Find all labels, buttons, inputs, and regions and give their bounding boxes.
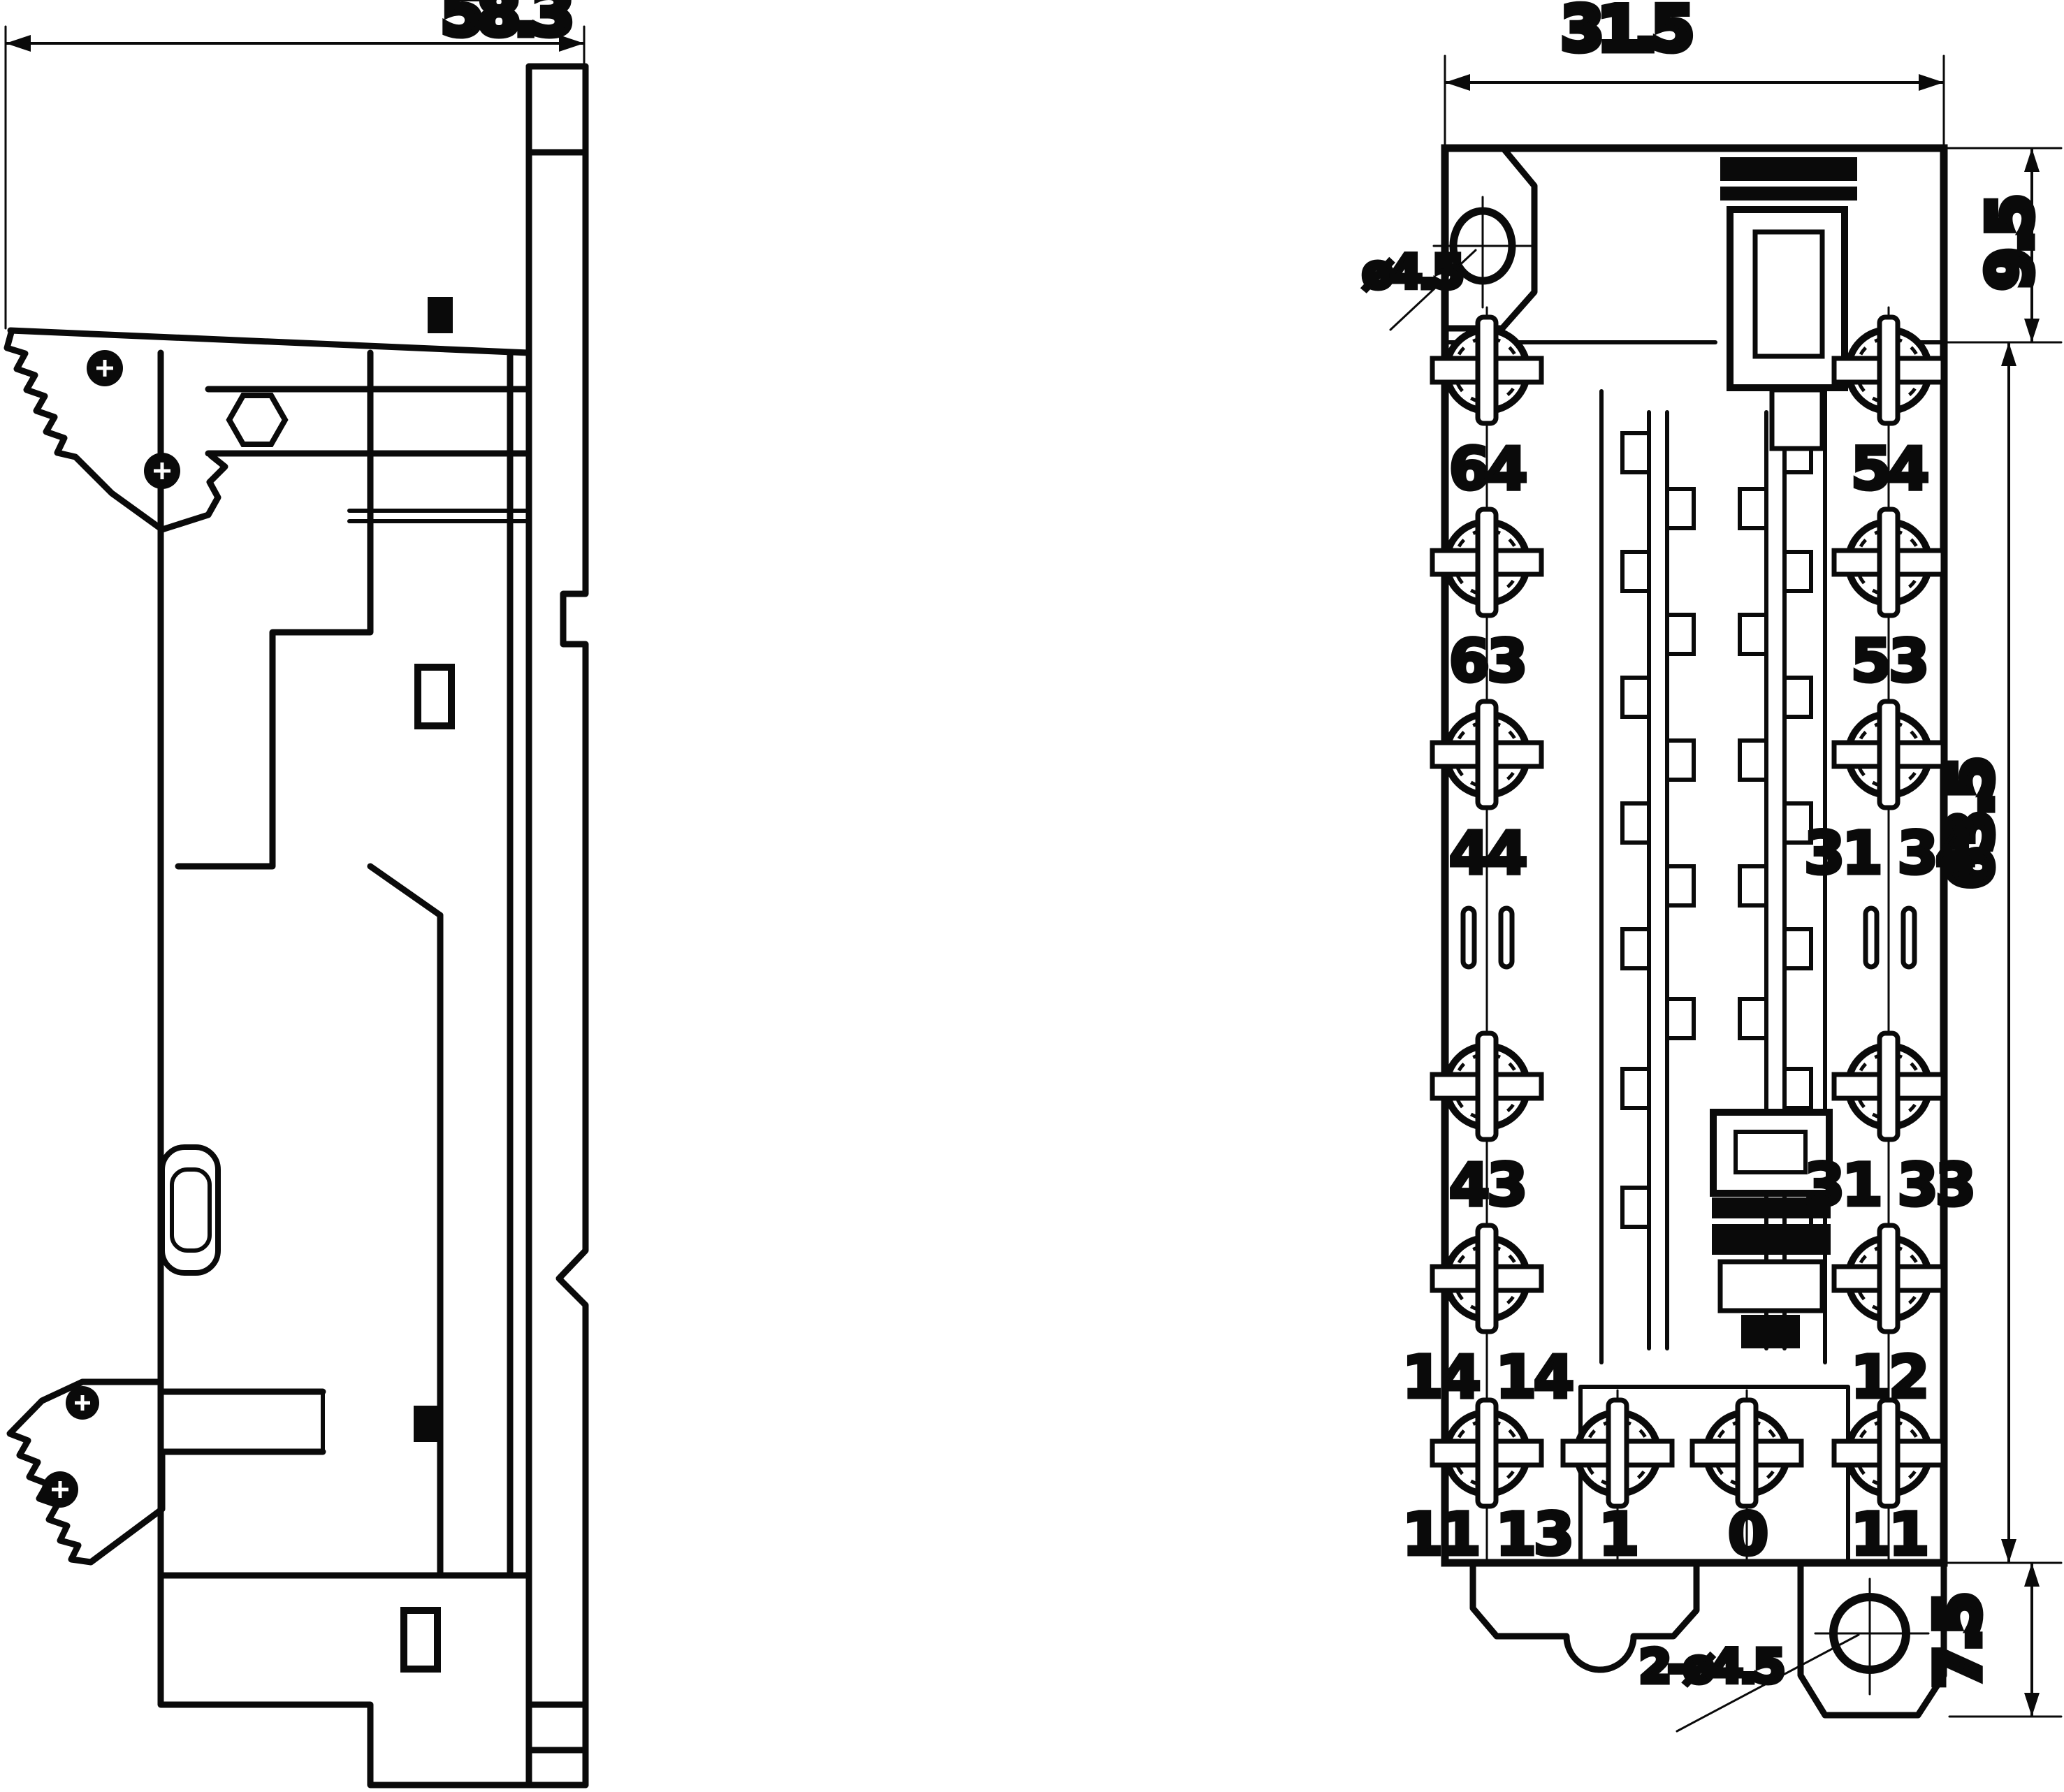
top-plate-edge: [10, 330, 529, 353]
clip-hex-hole: [229, 395, 285, 444]
drawing-canvas: 58.3: [0, 0, 2064, 1792]
front-width-dimension: 31.5: [1445, 0, 1944, 150]
terminal-screw[interactable]: [1834, 1033, 1943, 1139]
body-step-lines: [178, 353, 370, 866]
contact-blocks-right: [1740, 433, 1811, 1227]
body-slot-mark-bottom: [414, 1406, 440, 1442]
top-mounting-clip: [7, 333, 529, 530]
terminal-screw[interactable]: [1692, 1400, 1801, 1506]
terminal-screw[interactable]: [1834, 317, 1943, 423]
terminal-screw[interactable]: [1834, 1225, 1943, 1332]
terminal-label: 63: [1449, 627, 1525, 695]
terminal-label: 53: [1851, 627, 1927, 695]
terminal-label: 11 13: [1402, 1500, 1571, 1568]
terminal-label: 14 14: [1402, 1343, 1572, 1411]
terminal-label: 54: [1851, 435, 1927, 503]
terminal-screw[interactable]: [1834, 701, 1943, 808]
side-width-dimension: 58.3: [6, 0, 584, 328]
side-width-dim-text: 58.3: [441, 0, 569, 50]
vent-slot: [1866, 908, 1877, 967]
body-window-upper: [418, 667, 451, 726]
din-rail-edge: [559, 66, 586, 1785]
terminal-label: 0: [1728, 1500, 1766, 1568]
body-slot-mark-top: [428, 297, 453, 333]
terminal-label: 12: [1851, 1343, 1927, 1411]
bottom-mounting-clip: [10, 1382, 323, 1562]
vent-slot: [1501, 908, 1512, 967]
terminal-label: 31 34: [1804, 819, 1974, 887]
vent-slot: [1903, 908, 1914, 967]
body-window-lower: [404, 1610, 437, 1669]
top-hole-note-text: ø4.5: [1362, 245, 1461, 299]
technical-drawing: 58.3: [0, 0, 2064, 1792]
terminal-label: 64: [1449, 435, 1525, 503]
terminal-label: 31 33: [1804, 1151, 1973, 1219]
mount-tab-dim-text: 7.5: [1922, 1596, 1994, 1689]
bottom-mounting-tab: 2-ø4.5: [1639, 1563, 1944, 1731]
side-view: 58.3: [6, 0, 586, 1785]
front-width-dim-text: 31.5: [1561, 0, 1690, 65]
bottom-hole-note-text: 2-ø4.5: [1639, 1640, 1782, 1693]
vent-slot: [1463, 908, 1474, 967]
front-view: 31.5 ø4.5 2-ø4.5: [1362, 0, 2061, 1731]
terminal-screw[interactable]: [1834, 509, 1943, 615]
terminal-screw[interactable]: [1834, 1400, 1943, 1506]
terminal-label: 11: [1851, 1500, 1927, 1568]
bottom-latch[interactable]: [1712, 1112, 1831, 1348]
contact-blocks-left: [1622, 433, 1694, 1227]
terminal-label: 43: [1449, 1151, 1525, 1219]
terminal-label: 1: [1599, 1500, 1636, 1568]
top-section-dim-text: 9.5: [1975, 198, 2047, 291]
arrowhead-left: [6, 35, 31, 52]
top-latch[interactable]: [1720, 157, 1857, 449]
terminal-label: 44: [1449, 819, 1525, 887]
